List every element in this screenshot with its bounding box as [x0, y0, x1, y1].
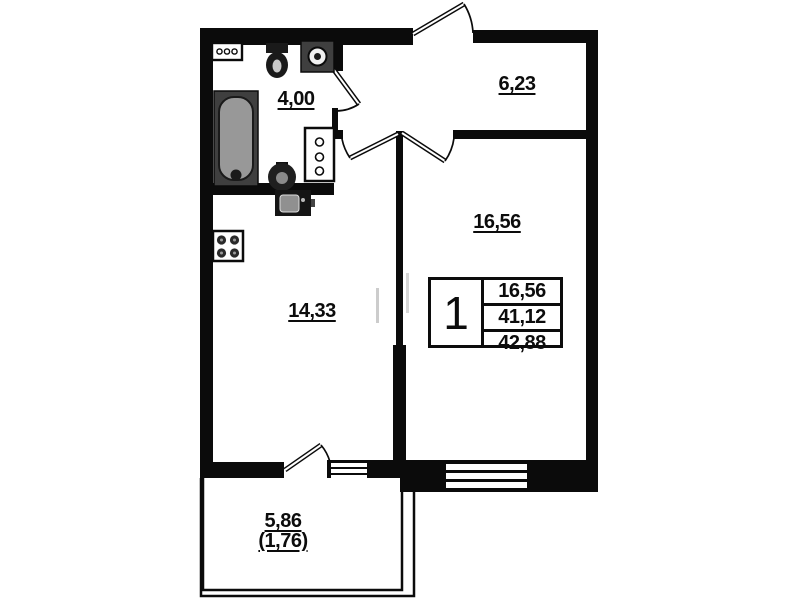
kitchen-door	[342, 134, 398, 158]
floor-plan: 4,00 6,23 16,56 14,33 5,86 (1,76) 1 16,5…	[0, 0, 799, 600]
wall-hall-livingroom	[453, 130, 587, 139]
bathroom-area-label: 4,00	[278, 88, 315, 111]
bathroom-door	[334, 70, 359, 111]
wall-left	[200, 28, 213, 478]
cabinet-icon	[305, 128, 334, 181]
rooms-count: 1	[431, 280, 484, 345]
living-room-area-label: 16,56	[473, 211, 521, 234]
wall-right	[586, 30, 598, 492]
balcony-door	[285, 445, 330, 470]
apartment-area-value: 41,12	[484, 303, 560, 329]
balcony-reduced-area-label: (1,76)	[258, 530, 307, 553]
areas-column: 16,56 41,12 42,88	[484, 280, 560, 345]
vent-grille-icon	[212, 43, 242, 60]
floor-plan-drawing	[0, 0, 799, 600]
wash-basin-icon	[268, 162, 296, 191]
washing-machine-icon	[301, 41, 334, 72]
living-room-door	[402, 133, 454, 161]
balcony-window	[331, 463, 367, 479]
living-room-window	[446, 464, 527, 488]
stove-icon	[213, 231, 243, 261]
kitchen-sink-icon	[275, 190, 315, 216]
entrance-door	[413, 4, 473, 34]
bathtub-icon	[214, 91, 258, 186]
apartment-info-table: 1 16,56 41,12 42,88	[428, 277, 563, 348]
walls	[200, 28, 598, 492]
wall-divider-lower	[393, 345, 406, 464]
toilet-icon	[266, 43, 288, 78]
wall-divider-upper	[396, 131, 403, 347]
wall-top-right	[473, 30, 598, 43]
radiator-marks	[376, 273, 409, 323]
living-area-value: 16,56	[484, 280, 560, 303]
kitchen-area-label: 14,33	[288, 300, 336, 323]
wall-kitchen-bottom-left	[200, 462, 284, 478]
total-area-value: 42,88	[484, 329, 560, 355]
hallway-area-label: 6,23	[499, 73, 536, 96]
